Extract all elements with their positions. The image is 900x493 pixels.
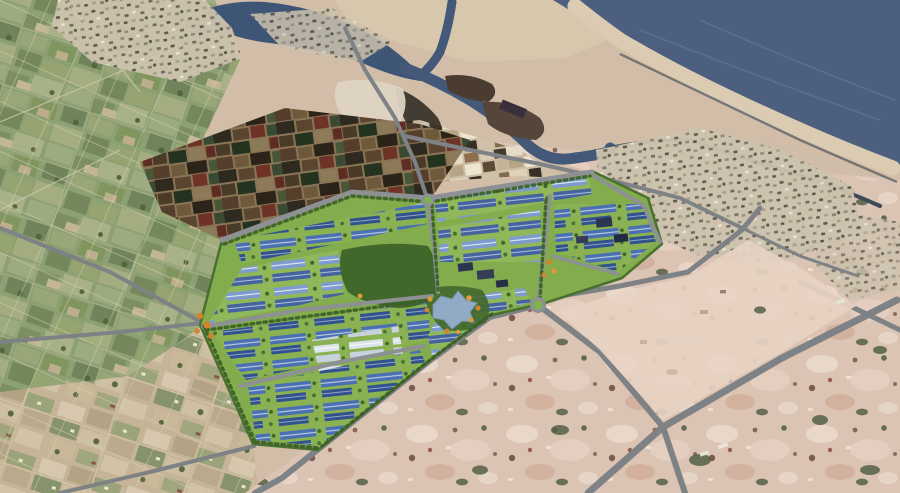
aerial-scene [0,0,900,493]
roundabout-north [422,194,435,207]
roundabout-south [530,297,546,313]
aerial-rendering-canvas [0,0,900,493]
